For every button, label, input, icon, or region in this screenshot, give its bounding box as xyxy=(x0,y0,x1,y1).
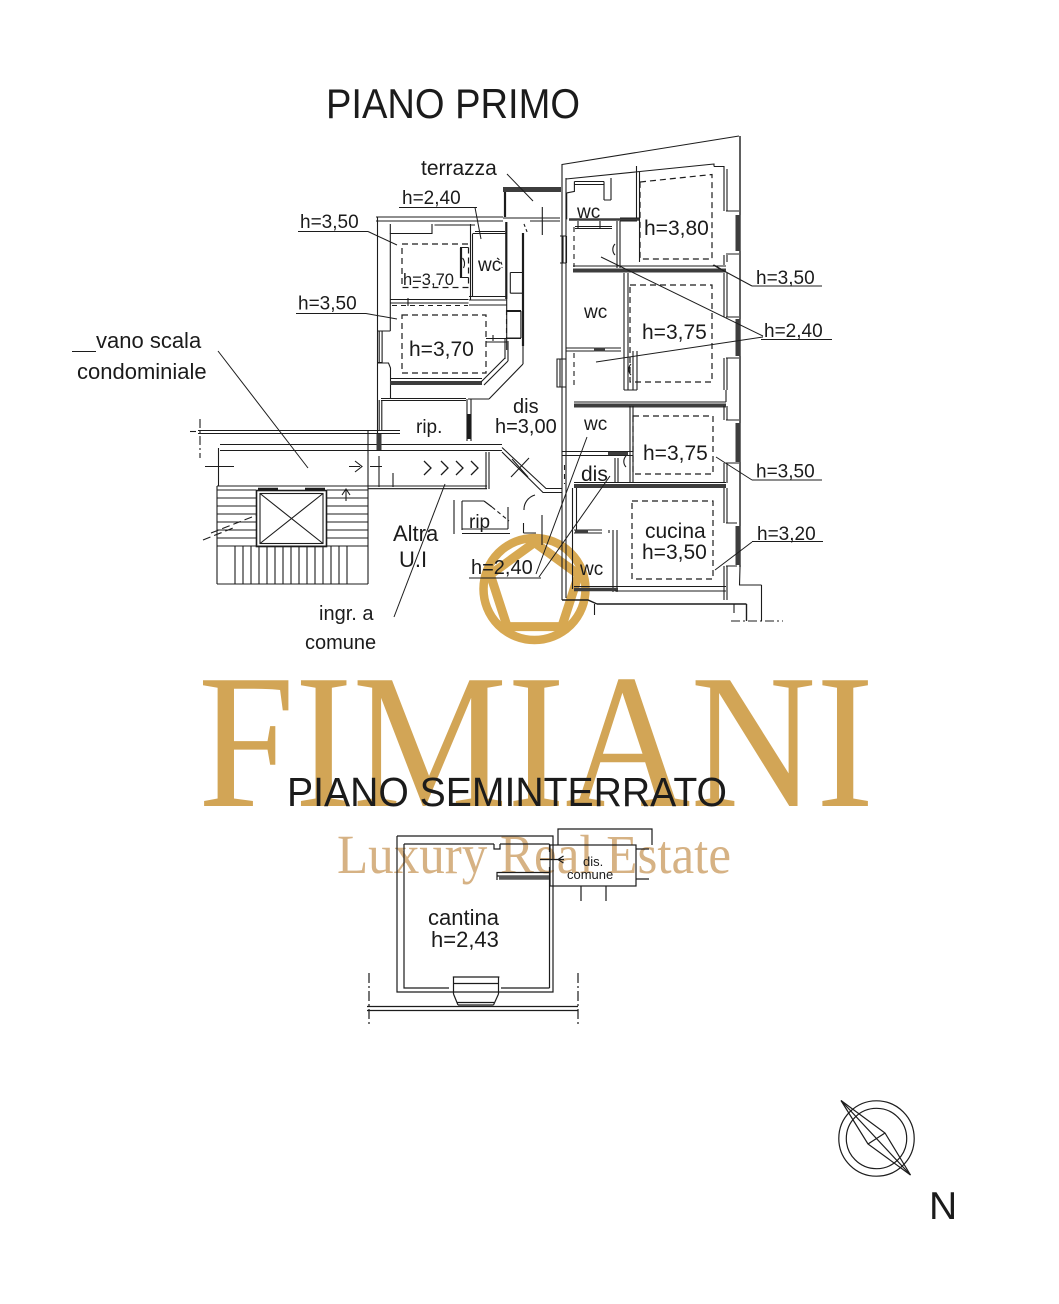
svg-text:Altra: Altra xyxy=(393,521,439,546)
svg-text:PIANO PRIMO: PIANO PRIMO xyxy=(326,80,580,127)
svg-text:rip: rip xyxy=(469,512,490,533)
svg-text:cucina: cucina xyxy=(645,520,706,543)
svg-text:h=3,70: h=3,70 xyxy=(403,271,454,289)
svg-text:comune: comune xyxy=(305,632,376,654)
svg-text:h=3,50: h=3,50 xyxy=(642,541,707,564)
svg-text:h=2,40: h=2,40 xyxy=(764,321,823,342)
svg-text:h=2,40: h=2,40 xyxy=(402,188,461,209)
svg-text:wc: wc xyxy=(583,414,607,435)
svg-text:vano scala: vano scala xyxy=(96,328,202,353)
svg-text:dis: dis xyxy=(513,396,539,418)
svg-text:FIMIANI: FIMIANI xyxy=(198,635,874,848)
svg-text:h=3,50: h=3,50 xyxy=(300,212,359,233)
svg-text:wc: wc xyxy=(576,202,600,223)
svg-text:wc: wc xyxy=(583,302,607,323)
svg-text:h=3,50: h=3,50 xyxy=(298,294,357,315)
svg-text:wc: wc xyxy=(579,559,603,580)
svg-text:h=3,75: h=3,75 xyxy=(642,321,707,344)
svg-text:h=3,70: h=3,70 xyxy=(409,338,474,361)
svg-text:N: N xyxy=(929,1185,957,1228)
svg-text:h=3,00: h=3,00 xyxy=(495,416,557,438)
svg-text:PIANO SEMINTERRATO: PIANO SEMINTERRATO xyxy=(287,769,727,815)
svg-text:terrazza: terrazza xyxy=(421,157,497,180)
svg-text:comune: comune xyxy=(567,867,613,882)
svg-text:h=2,43: h=2,43 xyxy=(431,927,499,952)
svg-text:h=3,75: h=3,75 xyxy=(643,442,708,465)
svg-text:rip.: rip. xyxy=(416,417,442,438)
svg-text:h=3,50: h=3,50 xyxy=(756,462,815,483)
svg-text:h=2,40: h=2,40 xyxy=(471,557,533,579)
svg-text:h=3,80: h=3,80 xyxy=(644,217,709,240)
svg-text:condominiale: condominiale xyxy=(77,359,207,384)
svg-text:ingr. a: ingr. a xyxy=(319,603,374,625)
